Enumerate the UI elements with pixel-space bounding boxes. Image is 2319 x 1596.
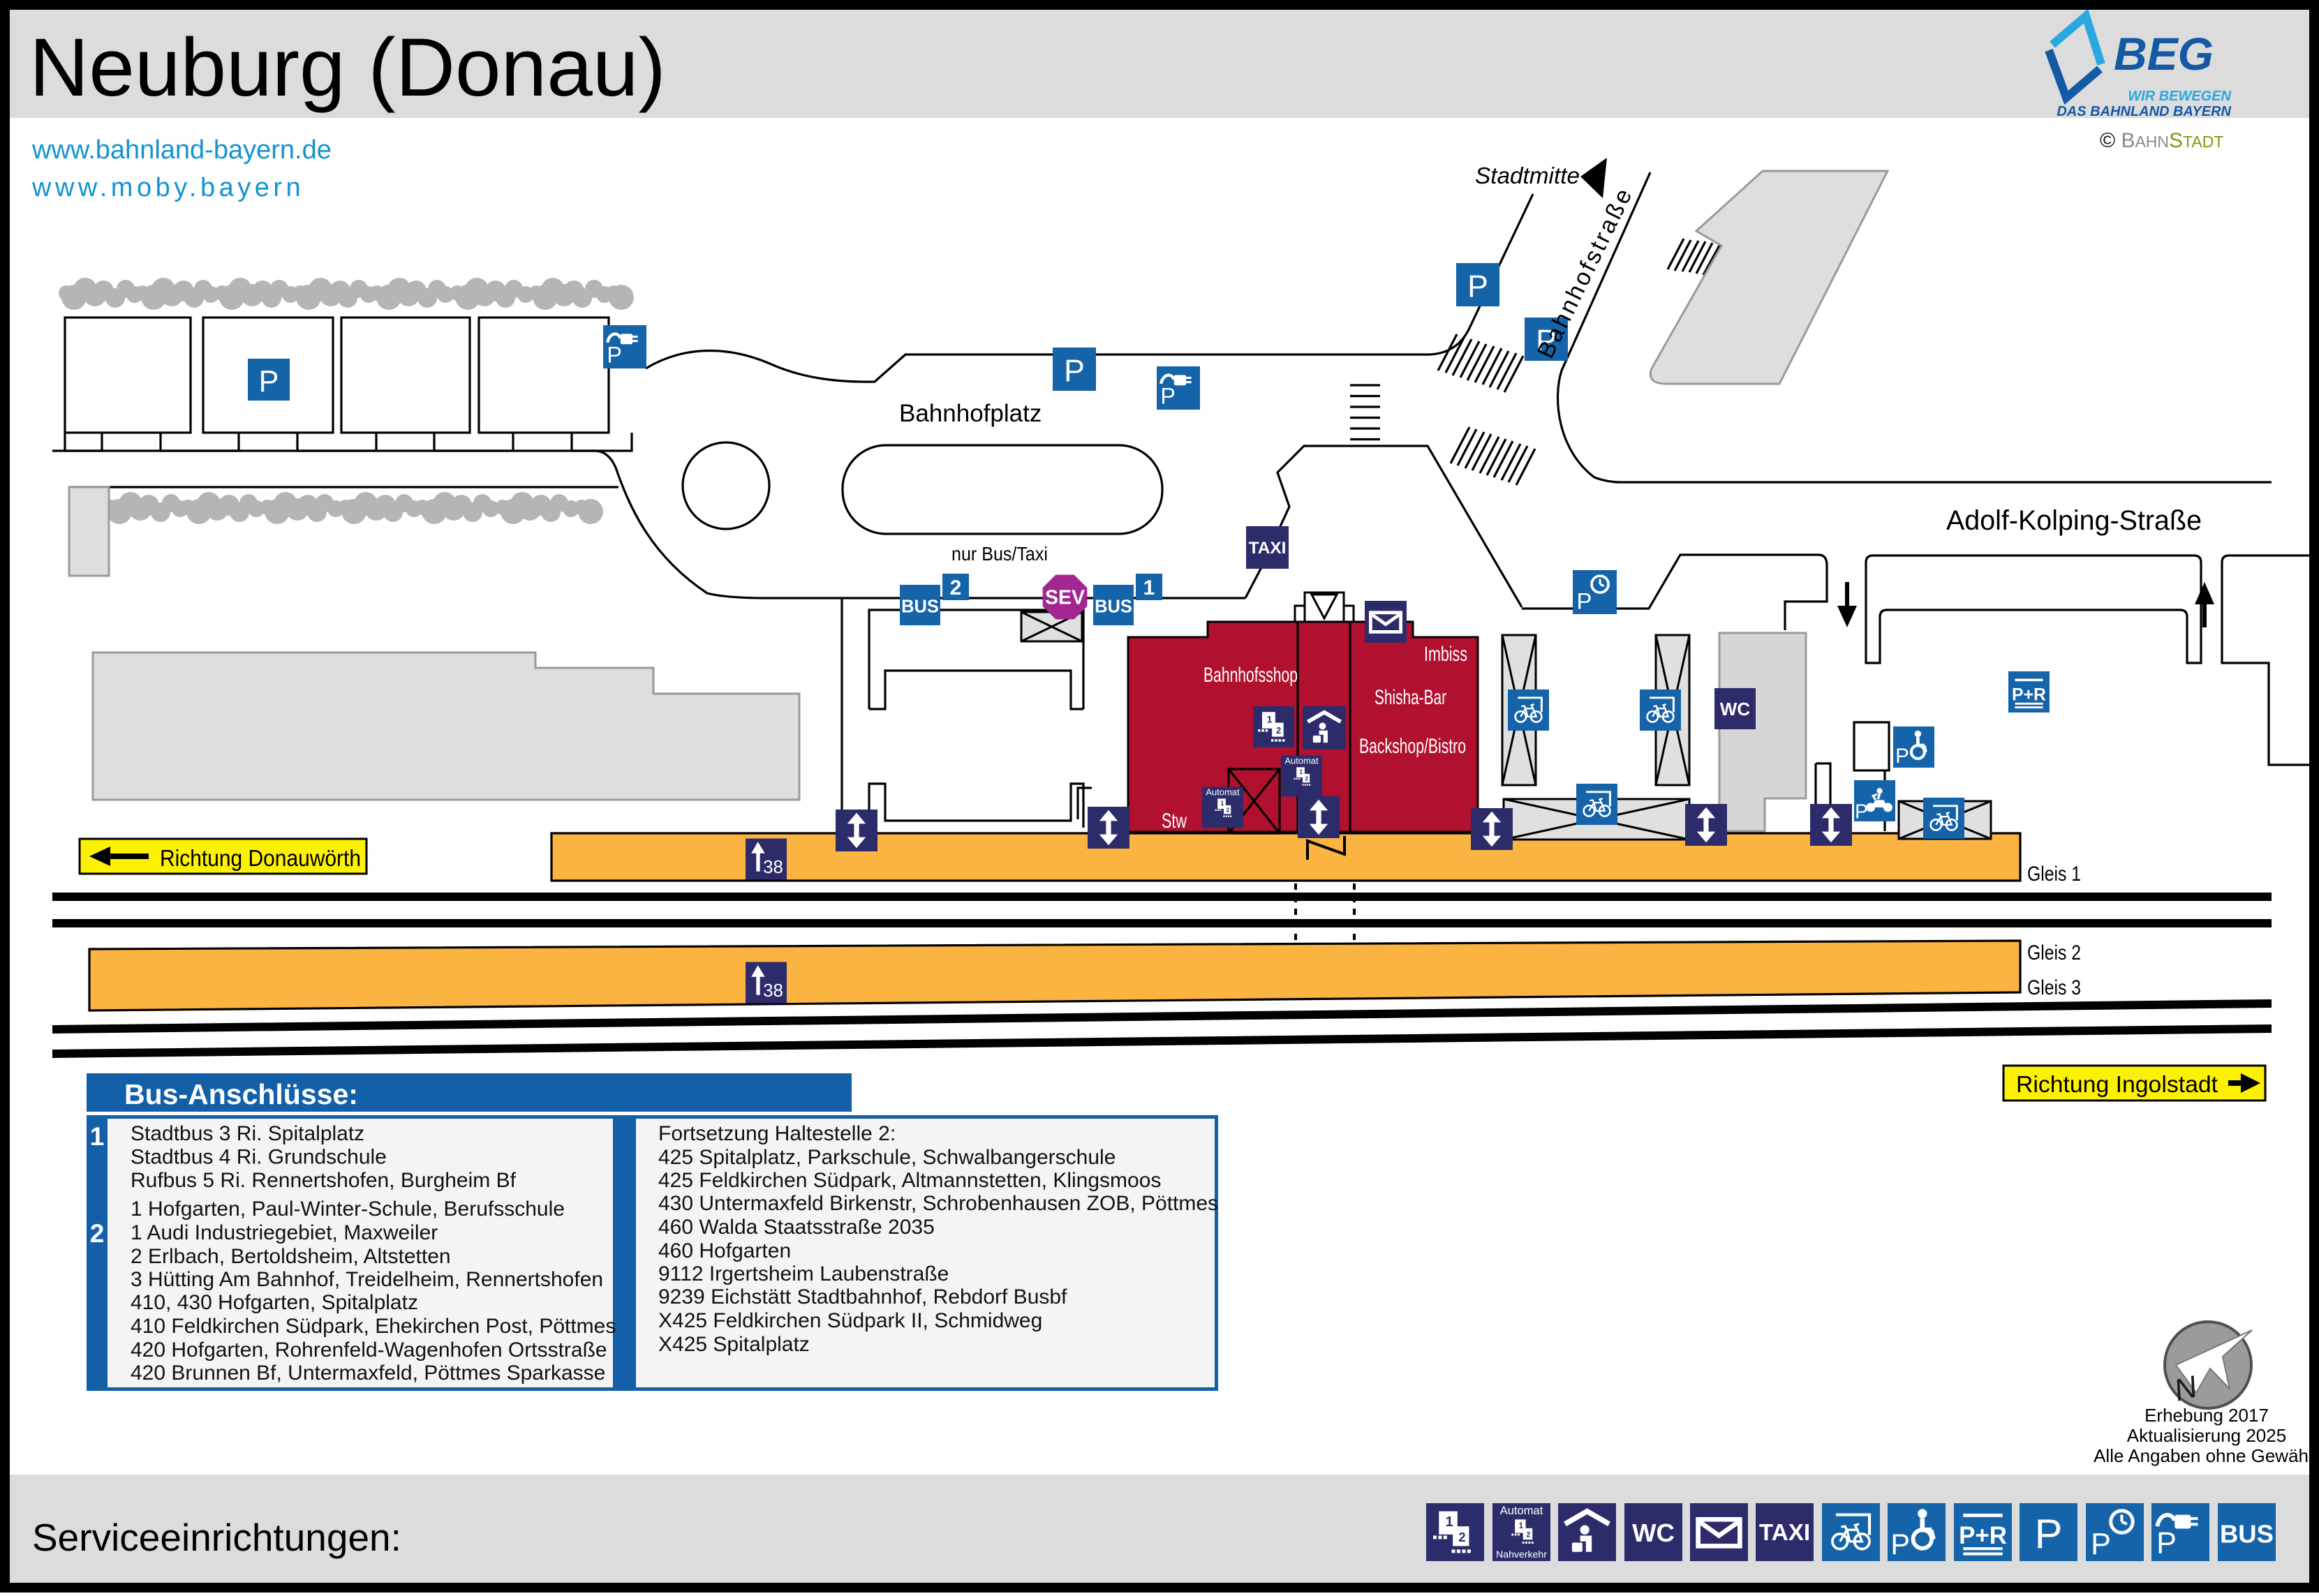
svg-text:Erhebung 2017: Erhebung 2017 — [2144, 1405, 2269, 1426]
svg-text:Gleis 3: Gleis 3 — [2027, 976, 2081, 999]
svg-text:DAS BAHNLAND BAYERN: DAS BAHNLAND BAYERN — [2057, 104, 2231, 119]
svg-text:Neuburg (Donau): Neuburg (Donau) — [29, 22, 666, 114]
svg-text:Fortsetzung Haltestelle 2:: Fortsetzung Haltestelle 2: — [658, 1122, 896, 1145]
svg-text:www.moby.bayern: www.moby.bayern — [31, 173, 304, 202]
svg-text:1 Hofgarten, Paul-Winter-Schul: 1 Hofgarten, Paul-Winter-Schule, Berufss… — [131, 1198, 565, 1221]
svg-text:www.bahnland-bayern.de: www.bahnland-bayern.de — [31, 135, 332, 165]
svg-text:Rufbus 5 Ri. Rennertshofen, Bu: Rufbus 5 Ri. Rennertshofen, Burgheim Bf — [131, 1169, 517, 1192]
svg-text:Imbiss: Imbiss — [1424, 643, 1467, 666]
svg-text:Bahnhofsshop: Bahnhofsshop — [1203, 664, 1298, 687]
svg-text:3 Hütting Am Bahnhof, Treidelh: 3 Hütting Am Bahnhof, Treidelheim, Renne… — [131, 1268, 603, 1291]
svg-text:460 Hofgarten: 460 Hofgarten — [658, 1239, 791, 1262]
svg-text:Gleis 2: Gleis 2 — [2027, 941, 2081, 964]
svg-text:Alle Angaben ohne Gewähr!: Alle Angaben ohne Gewähr! — [2094, 1445, 2319, 1466]
svg-text:BEG: BEG — [2114, 28, 2214, 80]
svg-text:2: 2 — [90, 1219, 105, 1248]
svg-text:1 Audi Industriegebiet, Maxwei: 1 Audi Industriegebiet, Maxweiler — [131, 1221, 438, 1244]
svg-text:420 Brunnen Bf, Untermaxfeld,: 420 Brunnen Bf, Untermaxfeld, Pöttmes Sp… — [131, 1362, 605, 1385]
svg-text:420 Hofgarten, Rohrenfeld-Wage: 420 Hofgarten, Rohrenfeld-Wagenhofen Ort… — [131, 1338, 607, 1362]
svg-text:9112 Irgertsheim Laubenstraße: 9112 Irgertsheim Laubenstraße — [658, 1262, 949, 1285]
svg-text:WIR BEWEGEN: WIR BEWEGEN — [2128, 89, 2231, 104]
svg-text:2 Erlbach, Bertoldsheim, Altst: 2 Erlbach, Bertoldsheim, Altstetten — [131, 1245, 451, 1268]
svg-text:Richtung Donauwörth: Richtung Donauwörth — [160, 845, 361, 871]
svg-text:Stw: Stw — [1162, 810, 1187, 833]
svg-text:Stadtmitte: Stadtmitte — [1475, 163, 1580, 188]
svg-text:460 Walda Staatsstraße 2035: 460 Walda Staatsstraße 2035 — [658, 1216, 935, 1239]
svg-text:Shisha-Bar: Shisha-Bar — [1375, 686, 1446, 709]
svg-text:425 Feldkirchen Südpark, Altma: 425 Feldkirchen Südpark, Altmannstetten,… — [658, 1169, 1161, 1192]
svg-text:Backshop/Bistro: Backshop/Bistro — [1359, 735, 1466, 758]
svg-text:2: 2 — [950, 576, 962, 599]
svg-text:X425 Spitalplatz: X425 Spitalplatz — [658, 1333, 810, 1356]
svg-text:1: 1 — [1143, 576, 1155, 599]
svg-text:X425 Feldkirchen Südpark II, S: X425 Feldkirchen Südpark II, Schmidweg — [658, 1309, 1042, 1332]
svg-text:1: 1 — [90, 1122, 105, 1151]
svg-text:425 Spitalplatz, Parkschule, S: 425 Spitalplatz, Parkschule, Schwalbange… — [658, 1146, 1116, 1169]
svg-text:410 Feldkirchen Südpark, Eheki: 410 Feldkirchen Südpark, Ehekirchen Post… — [131, 1315, 616, 1338]
svg-text:Stadtbus 4 Ri. Grundschule: Stadtbus 4 Ri. Grundschule — [131, 1146, 387, 1169]
svg-text:Richtung Ingolstadt: Richtung Ingolstadt — [2016, 1071, 2218, 1097]
svg-text:nur Bus/Taxi: nur Bus/Taxi — [951, 543, 1048, 565]
svg-text:Adolf-Kolping-Straße: Adolf-Kolping-Straße — [1946, 505, 2202, 536]
svg-text:Serviceeinrichtungen:: Serviceeinrichtungen: — [32, 1516, 401, 1559]
svg-text:Bahnhofplatz: Bahnhofplatz — [899, 400, 1042, 427]
svg-text:Aktualisierung 2025: Aktualisierung 2025 — [2127, 1425, 2286, 1446]
svg-text:9239 Eichstätt Stadtbahnhof, R: 9239 Eichstätt Stadtbahnhof, Rebdorf Bus… — [658, 1285, 1067, 1308]
svg-text:Gleis 1: Gleis 1 — [2027, 863, 2081, 886]
svg-text:410, 430 Hofgarten, Spitalplat: 410, 430 Hofgarten, Spitalplatz — [131, 1291, 418, 1314]
svg-text:Bus-Anschlüsse:: Bus-Anschlüsse: — [124, 1078, 358, 1110]
svg-text:430 Untermaxfeld Birkenstr, Sc: 430 Untermaxfeld Birkenstr, Schrobenhaus… — [658, 1192, 1218, 1215]
svg-text:© BAHNSTADT: © BAHNSTADT — [2100, 129, 2223, 152]
svg-text:Stadtbus 3 Ri. Spitalplatz: Stadtbus 3 Ri. Spitalplatz — [131, 1122, 364, 1145]
